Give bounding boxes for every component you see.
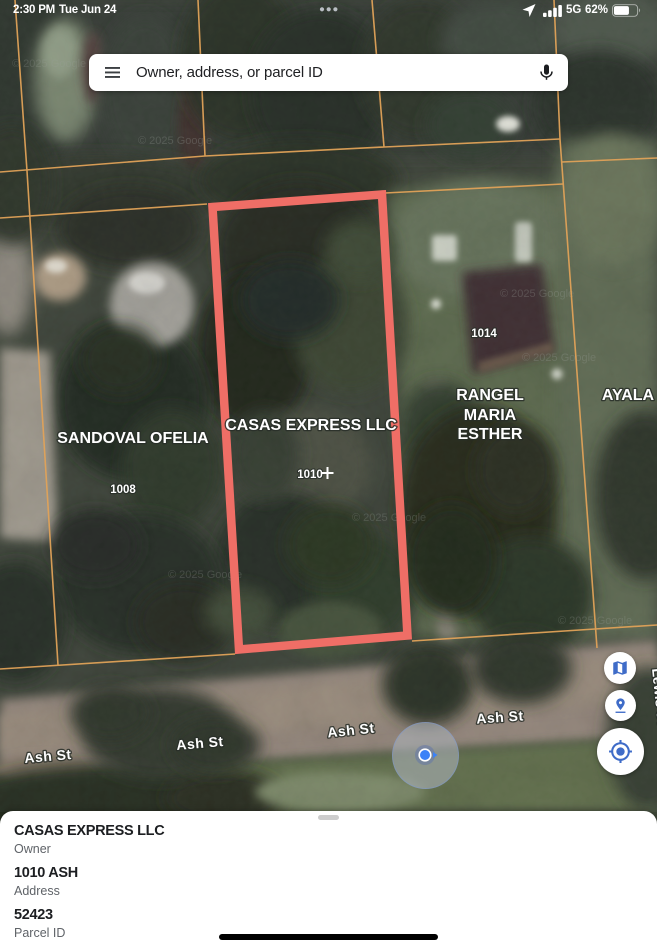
svg-text:© 2025 Google: © 2025 Google [352,512,426,524]
svg-text:1008: 1008 [110,484,136,496]
svg-text:© 2025 Google: © 2025 Google [522,352,596,364]
svg-text:ESTHER: ESTHER [458,426,523,443]
svg-text:AYALA: AYALA [602,387,655,404]
svg-text:© 2025 Google: © 2025 Google [500,288,574,300]
svg-text:MARIA: MARIA [464,407,517,424]
svg-text:1014: 1014 [471,328,497,340]
svg-text:CASAS EXPRESS LLC: CASAS EXPRESS LLC [225,417,397,434]
svg-text:Ash St: Ash St [476,707,524,726]
svg-text:RANGEL: RANGEL [456,387,524,404]
svg-text:© 2025 Google: © 2025 Google [138,135,212,147]
svg-text:SANDOVAL OFELIA: SANDOVAL OFELIA [57,430,209,447]
svg-text:1010: 1010 [297,469,323,481]
svg-text:© 2025 Google: © 2025 Google [12,58,86,70]
